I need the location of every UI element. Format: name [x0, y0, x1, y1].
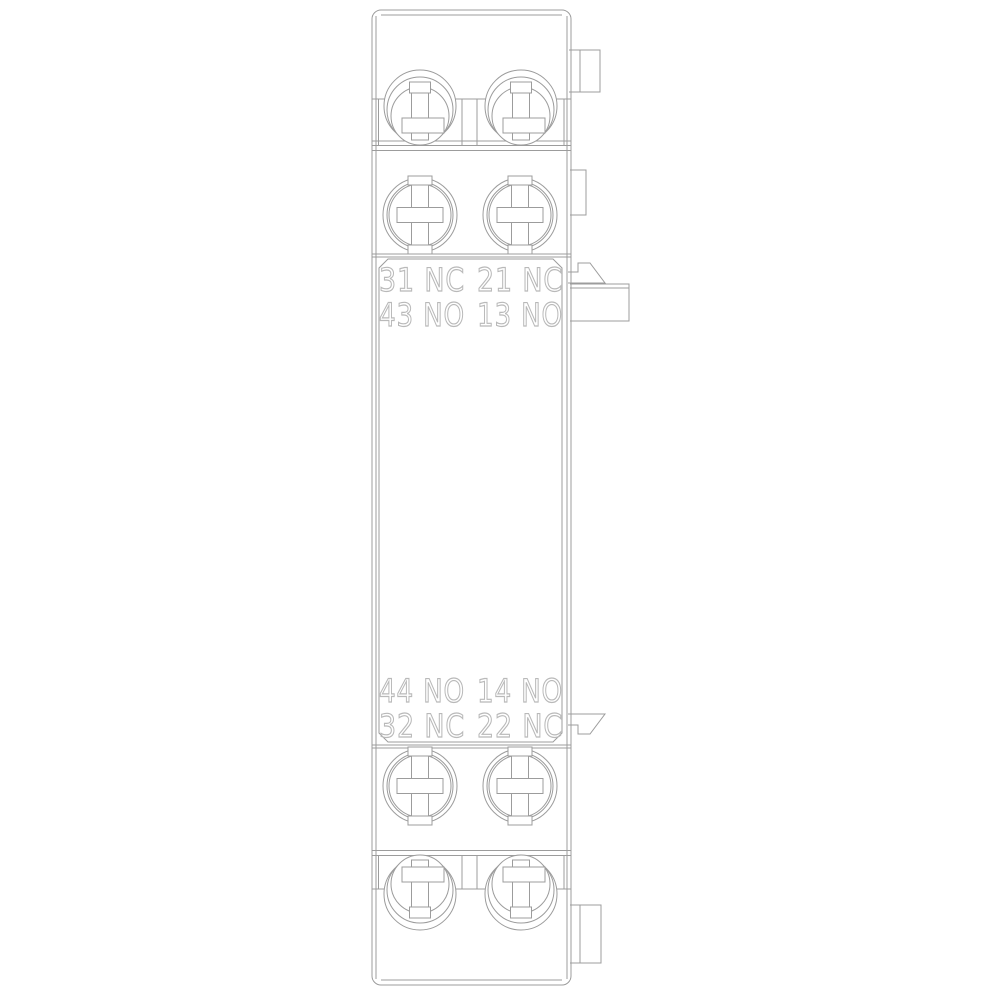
drawing-linework: 31 NC 21 NC 43 NO 13 NO 44 NO 14 NO 32 N… — [372, 10, 629, 985]
terminal-label: 44 NO — [379, 672, 465, 710]
slide-direction-arrow-icon — [568, 263, 605, 283]
product-drawing-canvas: 31 NC 21 NC 43 NO 13 NO 44 NO 14 NO 32 N… — [0, 0, 1000, 1000]
slide-direction-arrow-icon — [568, 714, 605, 734]
auxiliary-contact-block-drawing: 31 NC 21 NC 43 NO 13 NO 44 NO 14 NO 32 N… — [0, 0, 1000, 1000]
terminal-label: 14 NO — [477, 672, 563, 710]
terminal-label: 13 NO — [477, 296, 563, 334]
mounting-tab-icon — [570, 905, 601, 963]
mounting-tab-icon — [569, 50, 600, 92]
terminal-label: 31 NC — [379, 261, 465, 299]
terminal-label: 32 NC — [379, 707, 465, 745]
terminal-label: 21 NC — [477, 261, 563, 299]
terminal-label: 22 NC — [477, 707, 563, 745]
mounting-clip-icon — [570, 170, 586, 215]
mounting-plate-icon — [570, 284, 629, 321]
terminal-label: 43 NO — [379, 296, 465, 334]
